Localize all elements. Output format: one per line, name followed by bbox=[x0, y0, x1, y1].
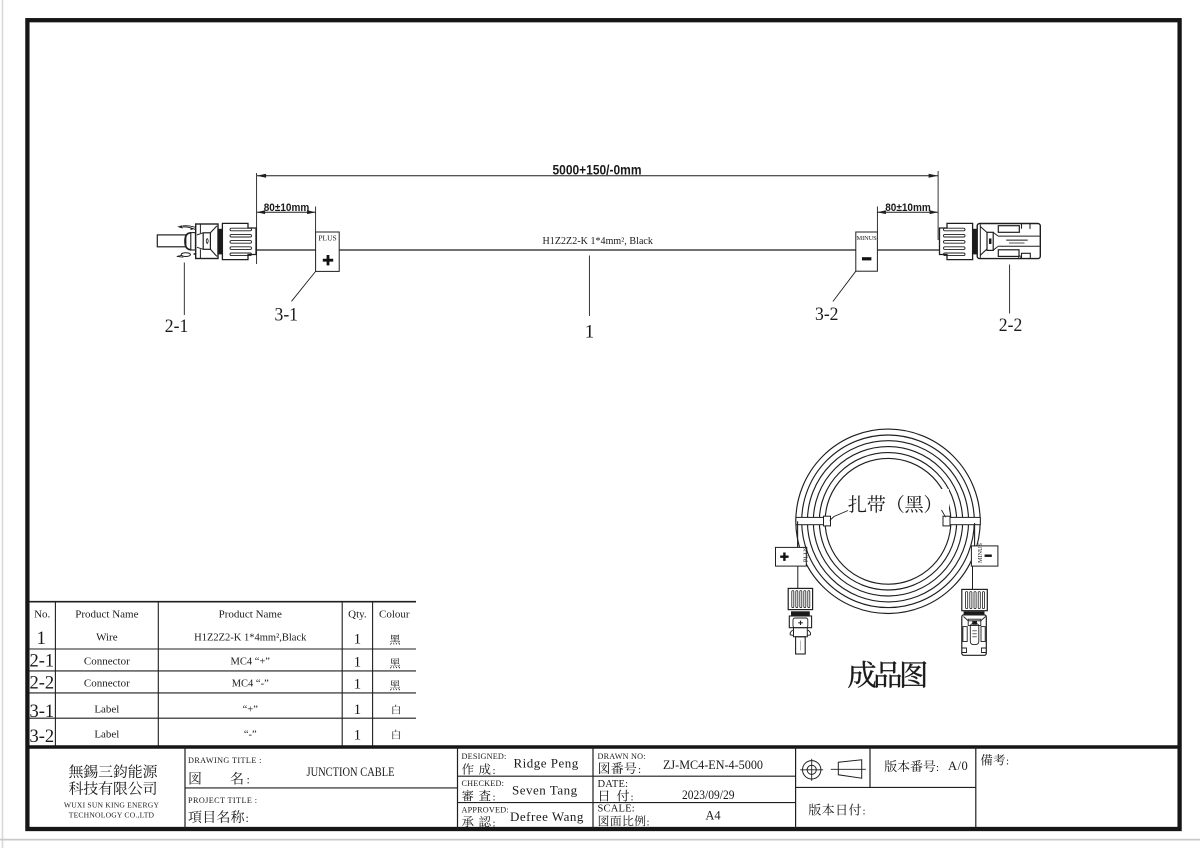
svg-text::: : bbox=[493, 791, 496, 803]
svg-text:MINUS: MINUS bbox=[977, 542, 984, 562]
svg-text::: : bbox=[647, 816, 650, 828]
svg-text:Product Name: Product Name bbox=[75, 609, 138, 621]
svg-text:PLUS: PLUS bbox=[803, 546, 810, 562]
svg-text:1: 1 bbox=[354, 632, 362, 648]
svg-text:5000+150/-0mm: 5000+150/-0mm bbox=[553, 163, 642, 178]
svg-text:Wire: Wire bbox=[96, 632, 118, 644]
svg-text:DRAWN NO:: DRAWN NO: bbox=[598, 752, 646, 761]
svg-text:A4: A4 bbox=[705, 809, 721, 823]
svg-text:Defree Wang: Defree Wang bbox=[510, 809, 584, 824]
svg-text::: : bbox=[863, 806, 866, 818]
svg-text:TECHNOLOGY CO.,LTD: TECHNOLOGY CO.,LTD bbox=[69, 811, 155, 820]
svg-text:Seven Tang: Seven Tang bbox=[512, 783, 578, 798]
svg-text:3-2: 3-2 bbox=[815, 304, 839, 325]
svg-text:ZJ-MC4-EN-4-5000: ZJ-MC4-EN-4-5000 bbox=[663, 758, 763, 772]
svg-text:MC4 “-”: MC4 “-” bbox=[232, 679, 269, 690]
svg-text:“+”: “+” bbox=[243, 705, 259, 716]
svg-text:MINUS: MINUS bbox=[857, 235, 878, 242]
svg-text:MC4 “+”: MC4 “+” bbox=[231, 657, 271, 668]
svg-text:H1Z2Z2-K 1*4mm², Black: H1Z2Z2-K 1*4mm², Black bbox=[543, 236, 653, 247]
svg-text:Product Name: Product Name bbox=[219, 609, 282, 621]
svg-text:Qty.: Qty. bbox=[348, 609, 367, 621]
svg-text::: : bbox=[247, 773, 250, 787]
svg-text:2023/09/29: 2023/09/29 bbox=[682, 788, 735, 802]
svg-text:SCALE:: SCALE: bbox=[598, 804, 635, 815]
svg-text:1: 1 bbox=[354, 702, 362, 718]
svg-text:DESIGNED:: DESIGNED: bbox=[462, 752, 507, 761]
svg-text:PLUS: PLUS bbox=[318, 234, 336, 243]
svg-text:“-”: “-” bbox=[244, 730, 257, 741]
svg-text:No.: No. bbox=[34, 609, 50, 621]
svg-text:A/0: A/0 bbox=[948, 759, 968, 773]
svg-text:1: 1 bbox=[585, 322, 595, 343]
svg-text:Label: Label bbox=[94, 704, 119, 716]
svg-text::: : bbox=[638, 764, 641, 776]
svg-text::: : bbox=[493, 765, 496, 777]
svg-text:2-2: 2-2 bbox=[999, 315, 1023, 336]
svg-text:2-1: 2-1 bbox=[165, 316, 189, 337]
svg-text:Label: Label bbox=[94, 729, 119, 741]
svg-text::: : bbox=[246, 811, 249, 825]
svg-text:3-2: 3-2 bbox=[30, 727, 55, 747]
svg-text:Connector: Connector bbox=[84, 656, 130, 668]
svg-text:1: 1 bbox=[354, 728, 362, 744]
svg-text:PROJECT TITLE :: PROJECT TITLE : bbox=[188, 796, 257, 805]
svg-text::: : bbox=[493, 817, 496, 829]
svg-text:DRAWING TITLE :: DRAWING TITLE : bbox=[188, 756, 262, 765]
svg-text::: : bbox=[631, 792, 634, 804]
svg-text:WUXI SUN KING ENERGY: WUXI SUN KING ENERGY bbox=[64, 800, 160, 809]
svg-text:1: 1 bbox=[354, 677, 362, 693]
svg-text:Connector: Connector bbox=[84, 678, 130, 690]
svg-text:80±10mm: 80±10mm bbox=[264, 202, 310, 214]
svg-text:3-1: 3-1 bbox=[30, 702, 55, 722]
svg-text:2-1: 2-1 bbox=[30, 652, 55, 672]
svg-text:2-2: 2-2 bbox=[30, 674, 55, 694]
svg-text::: : bbox=[1006, 756, 1009, 768]
svg-text:Colour: Colour bbox=[379, 609, 410, 621]
svg-text:DATE:: DATE: bbox=[598, 779, 629, 790]
svg-text:APPROVED:: APPROVED: bbox=[462, 806, 509, 815]
svg-text:1: 1 bbox=[37, 629, 46, 649]
svg-text:80±10mm: 80±10mm bbox=[885, 202, 931, 214]
svg-text::: : bbox=[936, 762, 939, 774]
svg-text:1: 1 bbox=[354, 655, 362, 671]
svg-text:H1Z2Z2-K 1*4mm²,Black: H1Z2Z2-K 1*4mm²,Black bbox=[194, 633, 307, 644]
svg-text:3-1: 3-1 bbox=[275, 305, 299, 326]
svg-text:Ridge Peng: Ridge Peng bbox=[514, 756, 579, 771]
svg-text:JUNCTION CABLE: JUNCTION CABLE bbox=[307, 765, 395, 779]
svg-text:CHECKED:: CHECKED: bbox=[462, 779, 505, 788]
